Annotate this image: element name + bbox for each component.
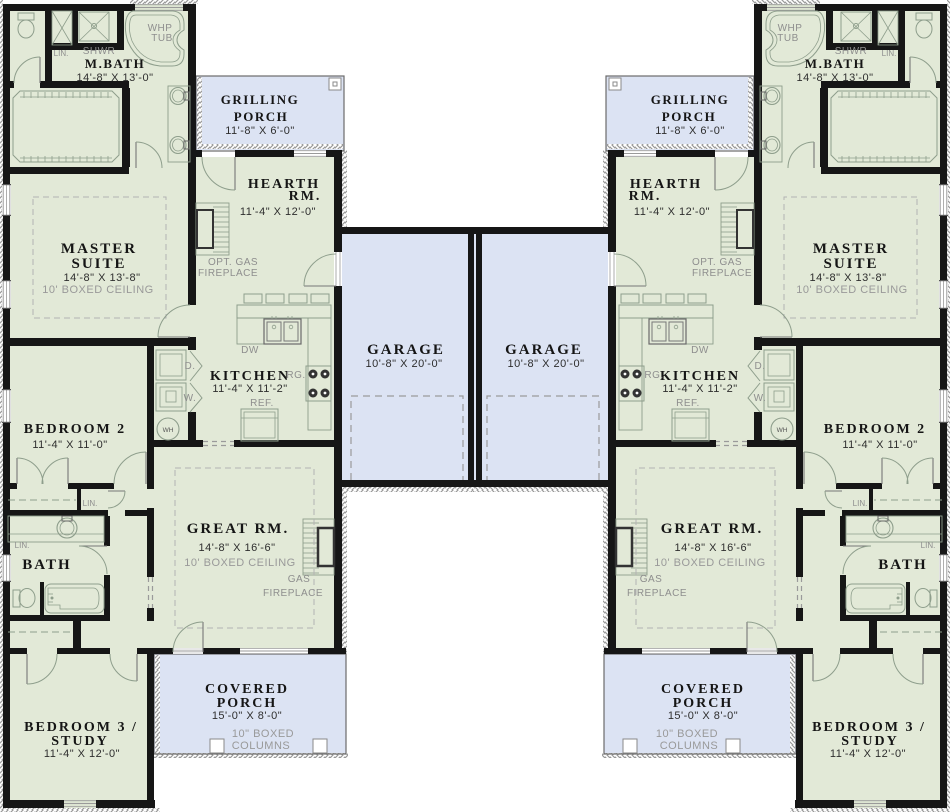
svg-text:LIN.: LIN. (921, 541, 936, 550)
svg-text:FIREPLACE: FIREPLACE (627, 588, 687, 599)
svg-text:10" BOXED: 10" BOXED (232, 728, 294, 740)
svg-text:LIN.: LIN. (54, 49, 69, 58)
svg-text:BATH: BATH (878, 557, 927, 573)
svg-text:10' BOXED CEILING: 10' BOXED CEILING (42, 284, 153, 296)
svg-text:GARAGE: GARAGE (505, 342, 583, 358)
svg-text:GAS: GAS (640, 574, 663, 585)
svg-text:LIN.: LIN. (853, 499, 868, 508)
svg-text:D.: D. (185, 361, 196, 372)
svg-text:10" BOXED: 10" BOXED (656, 728, 718, 740)
svg-text:14'-8" X 13'-0": 14'-8" X 13'-0" (77, 72, 154, 84)
svg-text:11'-4" X 12'-0": 11'-4" X 12'-0" (634, 206, 710, 218)
svg-text:M.BATH: M.BATH (805, 56, 865, 71)
svg-text:REF.: REF. (250, 398, 274, 409)
svg-text:10'-8" X 20'-0": 10'-8" X 20'-0" (366, 358, 443, 370)
svg-text:10' BOXED CEILING: 10' BOXED CEILING (796, 284, 907, 296)
svg-text:BEDROOM 3 /: BEDROOM 3 / (812, 720, 926, 735)
svg-text:TUB: TUB (777, 33, 799, 44)
svg-text:LIN.: LIN. (882, 49, 897, 58)
svg-text:11'-4" X 11'-2": 11'-4" X 11'-2" (212, 383, 287, 395)
svg-text:14'-8" X 13'-0": 14'-8" X 13'-0" (797, 72, 874, 84)
svg-text:RM.: RM. (629, 189, 662, 204)
svg-text:GREAT RM.: GREAT RM. (661, 521, 763, 537)
svg-text:STUDY: STUDY (51, 734, 108, 749)
svg-text:COVERED: COVERED (661, 682, 745, 697)
svg-text:PORCH: PORCH (673, 696, 734, 711)
svg-text:RG.: RG. (286, 370, 305, 381)
svg-text:STUDY: STUDY (841, 734, 898, 749)
svg-text:LIN.: LIN. (83, 499, 98, 508)
svg-text:15'-0" X 8'-0": 15'-0" X 8'-0" (668, 710, 738, 722)
svg-text:GARAGE: GARAGE (367, 342, 445, 358)
svg-text:PORCH: PORCH (234, 109, 288, 124)
svg-text:OPT. GAS: OPT. GAS (208, 257, 258, 268)
svg-text:GAS: GAS (288, 574, 311, 585)
svg-text:14'-8" X 16'-6": 14'-8" X 16'-6" (675, 542, 752, 554)
svg-text:FIREPLACE: FIREPLACE (263, 588, 323, 599)
svg-text:11'-8" X 6'-0": 11'-8" X 6'-0" (655, 125, 725, 137)
svg-text:15'-0" X 8'-0": 15'-0" X 8'-0" (212, 710, 282, 722)
svg-text:BEDROOM 3 /: BEDROOM 3 / (24, 720, 138, 735)
svg-text:RM.: RM. (289, 189, 322, 204)
svg-text:11'-4" X 11'-2": 11'-4" X 11'-2" (662, 383, 737, 395)
svg-text:FIREPLACE: FIREPLACE (692, 268, 752, 279)
svg-text:DW: DW (241, 345, 259, 356)
svg-text:11'-4" X 11'-0": 11'-4" X 11'-0" (32, 439, 107, 451)
svg-text:GREAT RM.: GREAT RM. (187, 521, 289, 537)
svg-text:KITCHEN: KITCHEN (210, 369, 290, 384)
svg-text:W.: W. (184, 393, 197, 404)
svg-text:SUITE: SUITE (823, 256, 878, 272)
svg-text:BEDROOM 2: BEDROOM 2 (824, 422, 926, 437)
svg-text:OPT. GAS: OPT. GAS (692, 257, 742, 268)
svg-text:PORCH: PORCH (662, 109, 716, 124)
svg-text:11'-4" X 11'-0": 11'-4" X 11'-0" (842, 439, 917, 451)
svg-text:BATH: BATH (22, 557, 71, 573)
svg-text:14'-8" X 13'-8": 14'-8" X 13'-8" (810, 272, 887, 284)
svg-text:SHWR: SHWR (83, 46, 116, 57)
svg-text:COVERED: COVERED (205, 682, 289, 697)
svg-text:REF.: REF. (676, 398, 700, 409)
svg-text:COLUMNS: COLUMNS (232, 740, 291, 752)
svg-text:SUITE: SUITE (71, 256, 126, 272)
svg-text:11'-4" X 12'-0": 11'-4" X 12'-0" (240, 206, 316, 218)
svg-text:11'-4" X 12'-0": 11'-4" X 12'-0" (830, 748, 906, 760)
svg-text:KITCHEN: KITCHEN (660, 369, 740, 384)
svg-text:D.: D. (755, 361, 766, 372)
svg-text:PORCH: PORCH (217, 696, 278, 711)
svg-text:WH: WH (777, 427, 788, 434)
svg-text:MASTER: MASTER (61, 241, 137, 257)
svg-text:WH: WH (163, 427, 174, 434)
svg-text:10' BOXED CEILING: 10' BOXED CEILING (654, 557, 765, 569)
svg-text:DW: DW (691, 345, 709, 356)
svg-text:GRILLING: GRILLING (651, 92, 729, 107)
svg-text:COLUMNS: COLUMNS (660, 740, 719, 752)
svg-text:11'-4" X 12'-0": 11'-4" X 12'-0" (44, 748, 120, 760)
svg-text:BEDROOM 2: BEDROOM 2 (24, 422, 126, 437)
svg-text:14'-8" X 16'-6": 14'-8" X 16'-6" (199, 542, 276, 554)
svg-text:GRILLING: GRILLING (221, 92, 299, 107)
svg-text:11'-8" X 6'-0": 11'-8" X 6'-0" (225, 125, 295, 137)
svg-text:M.BATH: M.BATH (85, 56, 145, 71)
svg-text:14'-8" X 13'-8": 14'-8" X 13'-8" (64, 272, 141, 284)
svg-text:FIREPLACE: FIREPLACE (198, 268, 258, 279)
svg-text:TUB: TUB (151, 33, 173, 44)
svg-text:W.: W. (754, 393, 767, 404)
svg-text:LIN.: LIN. (15, 541, 30, 550)
svg-text:SHWR: SHWR (835, 46, 868, 57)
svg-text:RG.: RG. (644, 370, 663, 381)
svg-text:10'-8" X 20'-0": 10'-8" X 20'-0" (508, 358, 585, 370)
svg-text:10' BOXED CEILING: 10' BOXED CEILING (184, 557, 295, 569)
svg-text:MASTER: MASTER (813, 241, 889, 257)
